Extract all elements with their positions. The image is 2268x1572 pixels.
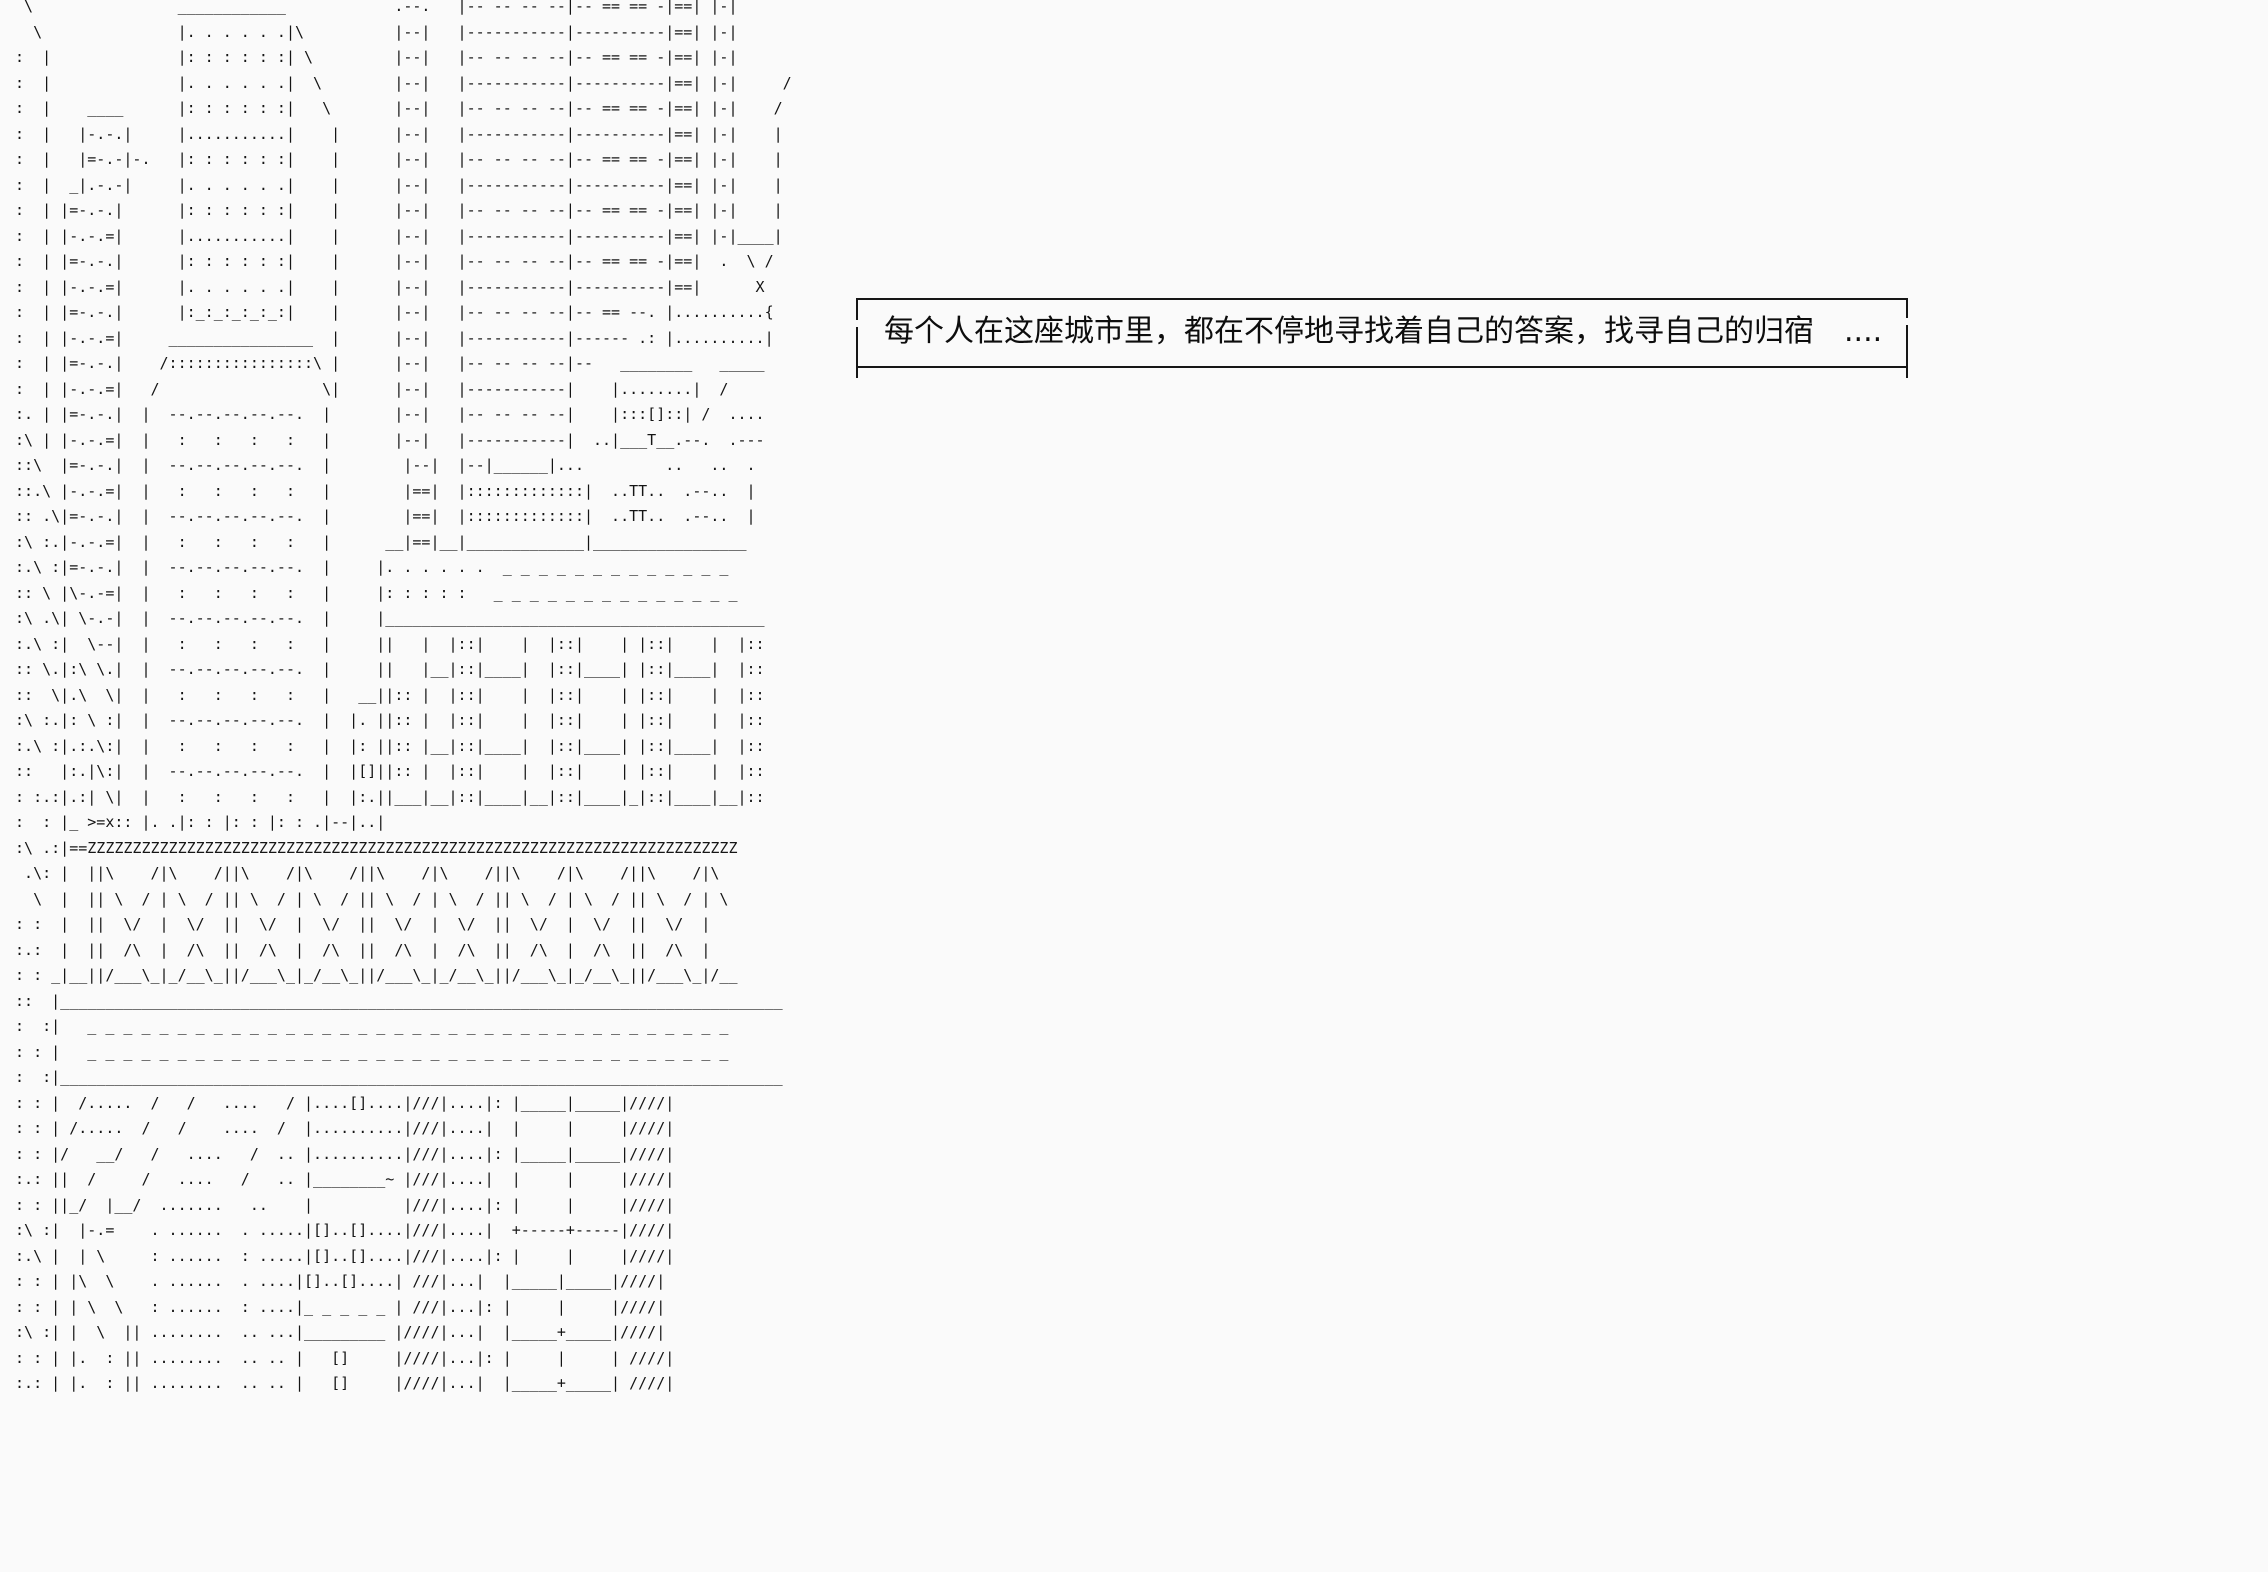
dialogue-box: 每个人在这座城市里，都在不停地寻找着自己的答案，找寻自己的归宿 .... (856, 298, 1908, 368)
ascii-art-cityscape: \ ____________ .--. |-- -- -- --|-- == =… (6, 0, 792, 1397)
page-background: \ ____________ .--. |-- -- -- --|-- == =… (0, 0, 2268, 1572)
box-corner-tick-right (1906, 366, 1908, 378)
dialogue-text: 每个人在这座城市里，都在不停地寻找着自己的答案，找寻自己的归宿 .... (858, 300, 1906, 364)
box-corner-tick-left (856, 366, 858, 378)
